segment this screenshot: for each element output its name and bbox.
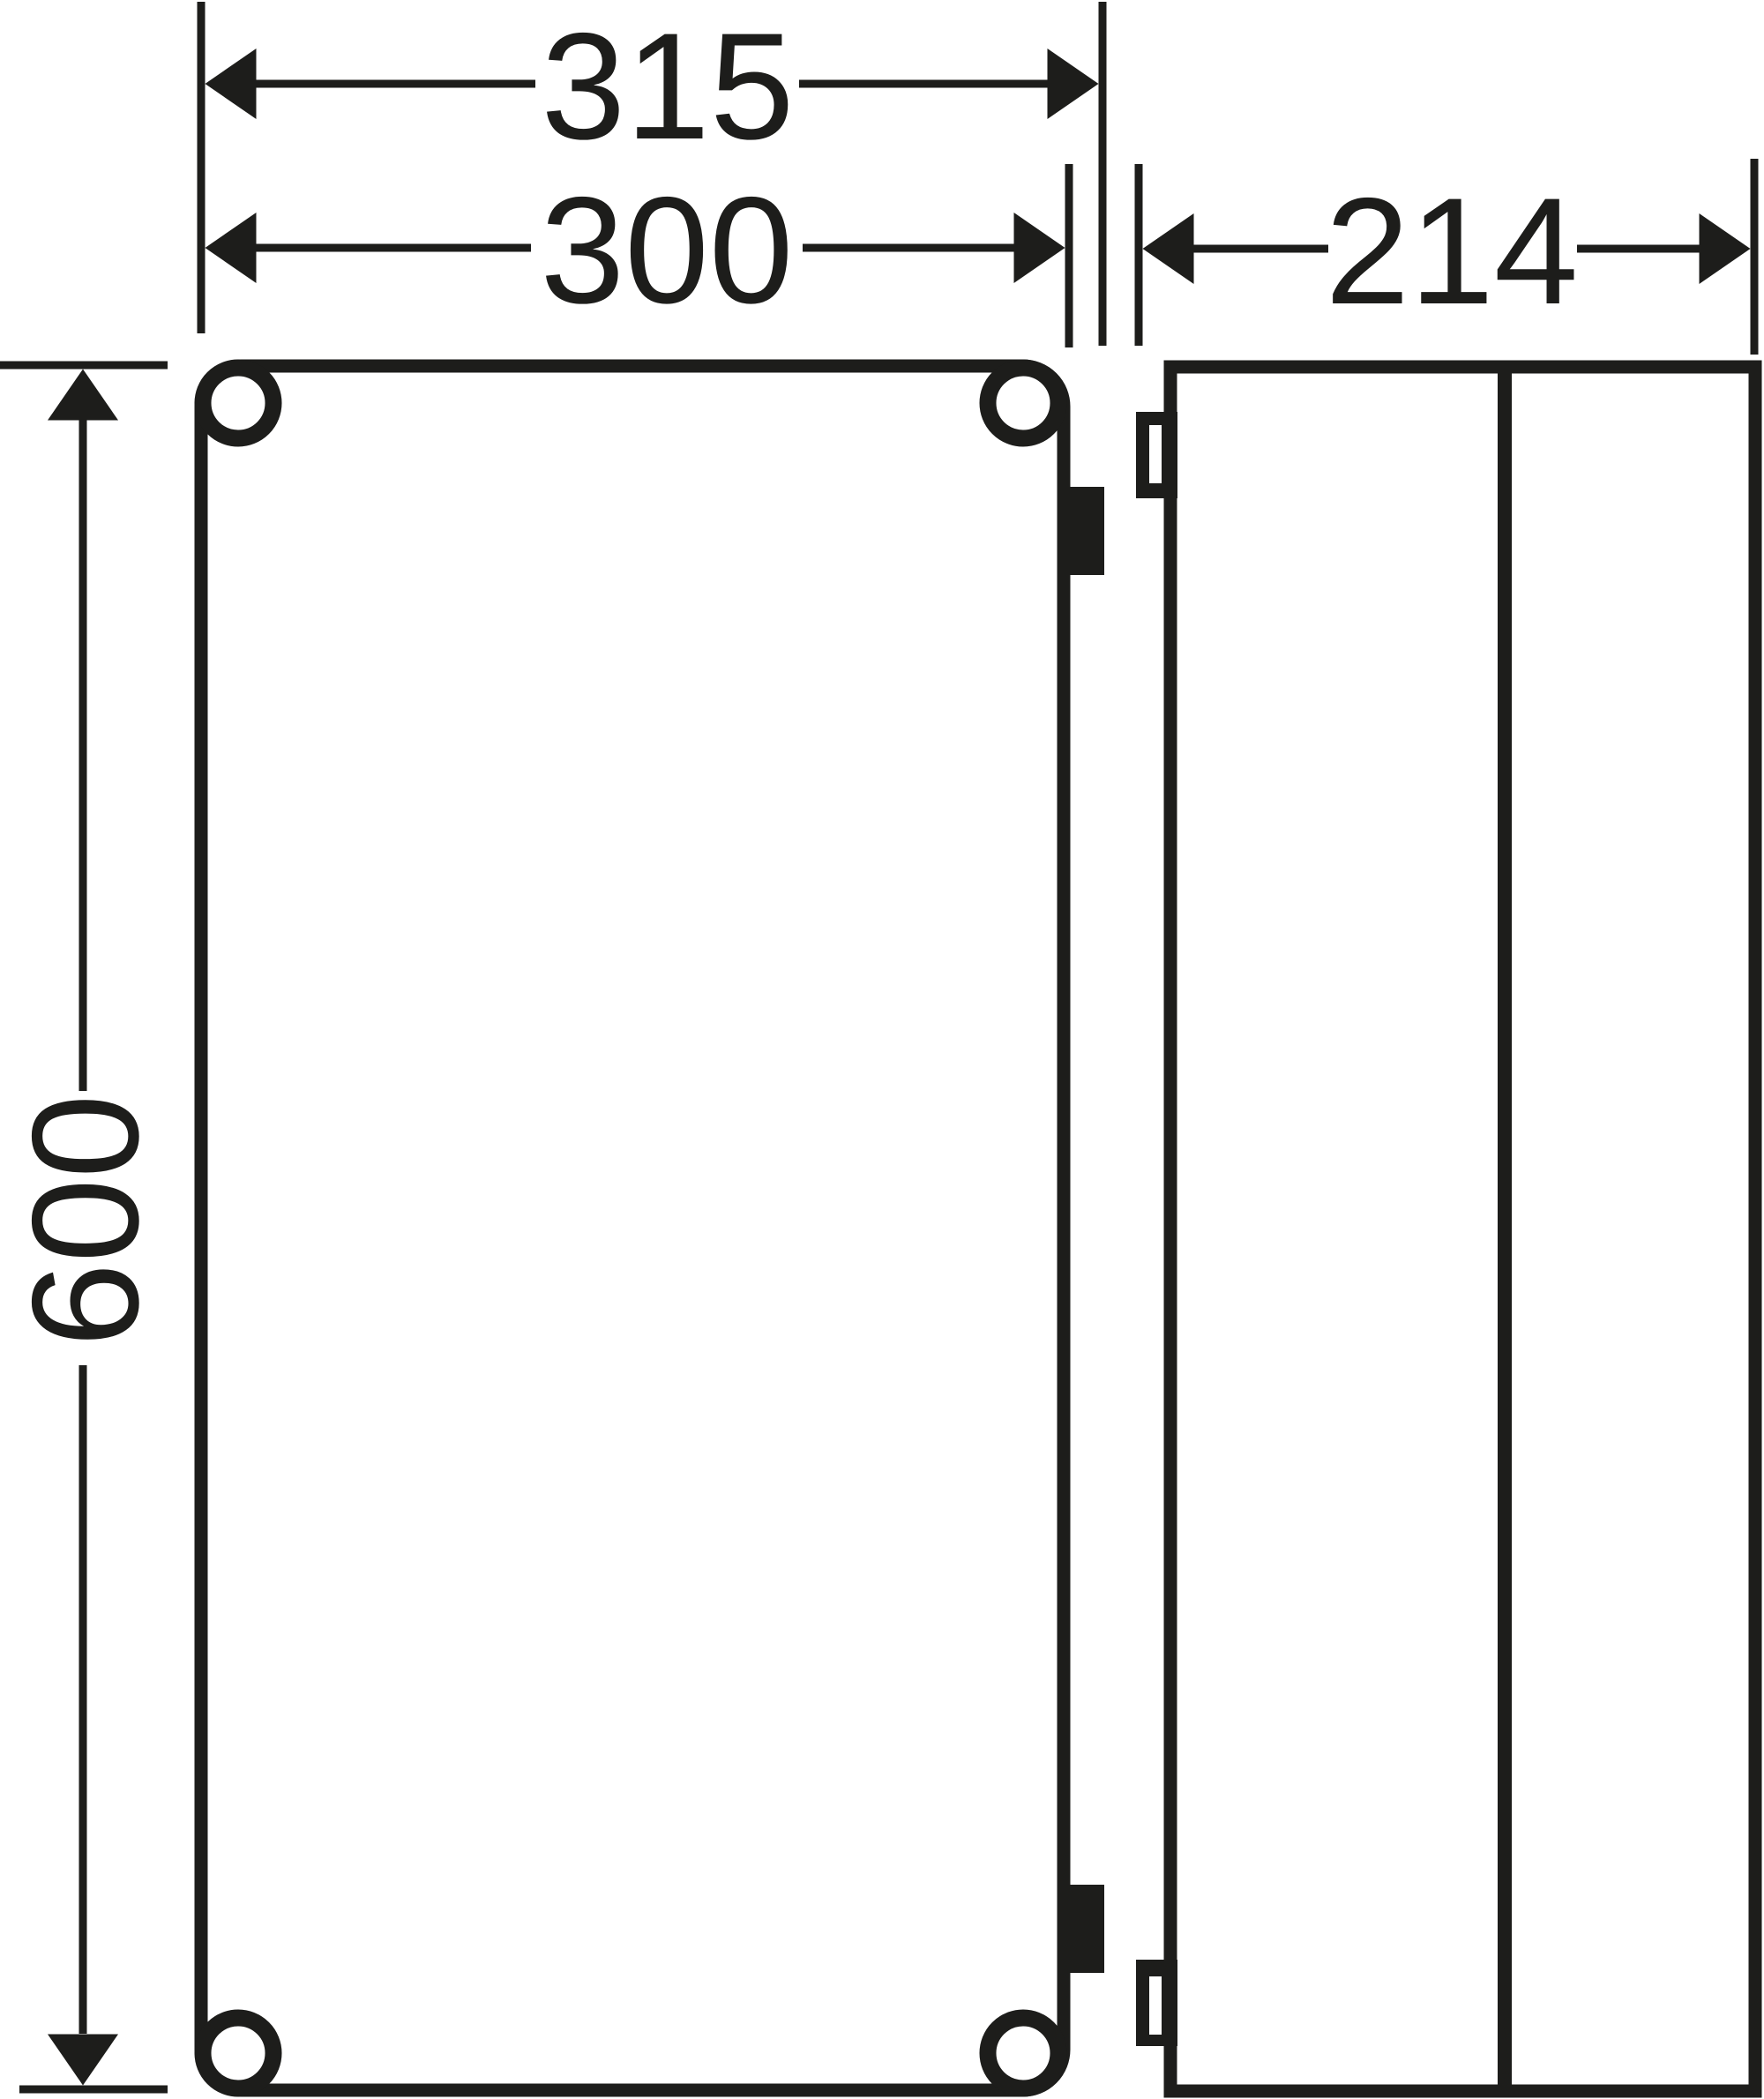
dimension-drawing-page: 315 300 214 600: [0, 0, 1764, 2099]
latch-slot-top: [1149, 425, 1162, 483]
arrowhead-left-icon: [206, 49, 257, 119]
arrowhead-right-icon: [1048, 49, 1099, 119]
side-view-outline: [1170, 367, 1755, 2091]
arrowhead-down-icon: [48, 2035, 118, 2086]
dimension-label-enclosure-width: 300: [541, 166, 794, 335]
drawing-canvas: 315 300 214 600: [0, 0, 1764, 2099]
arrowhead-right-icon: [1014, 213, 1065, 283]
arrowhead-up-icon: [48, 370, 118, 421]
corner-screw-bottom-left: [203, 2018, 273, 2088]
corner-screw-top-left: [203, 368, 273, 438]
arrowhead-left-icon: [206, 213, 257, 283]
hinge-tab-bottom: [1064, 1885, 1104, 1973]
dimension-height: 600: [0, 365, 170, 2089]
front-view: [201, 366, 1104, 2090]
dimension-label-height: 600: [1, 1094, 170, 1348]
latch-slot-bottom: [1149, 1976, 1162, 2035]
dimension-depth: 214: [1139, 159, 1754, 355]
corner-screw-top-right: [988, 368, 1058, 438]
arrowhead-left-icon: [1143, 213, 1194, 284]
dimension-label-depth: 214: [1326, 167, 1579, 336]
side-view: [1136, 367, 1755, 2091]
corner-screw-bottom-right: [988, 2018, 1058, 2088]
hinge-tab-top: [1064, 487, 1104, 575]
dimension-label-overall-width: 315: [542, 2, 795, 171]
front-view-outline: [201, 366, 1064, 2090]
dimension-enclosure-width: 300: [206, 164, 1070, 347]
arrowhead-right-icon: [1700, 213, 1751, 284]
